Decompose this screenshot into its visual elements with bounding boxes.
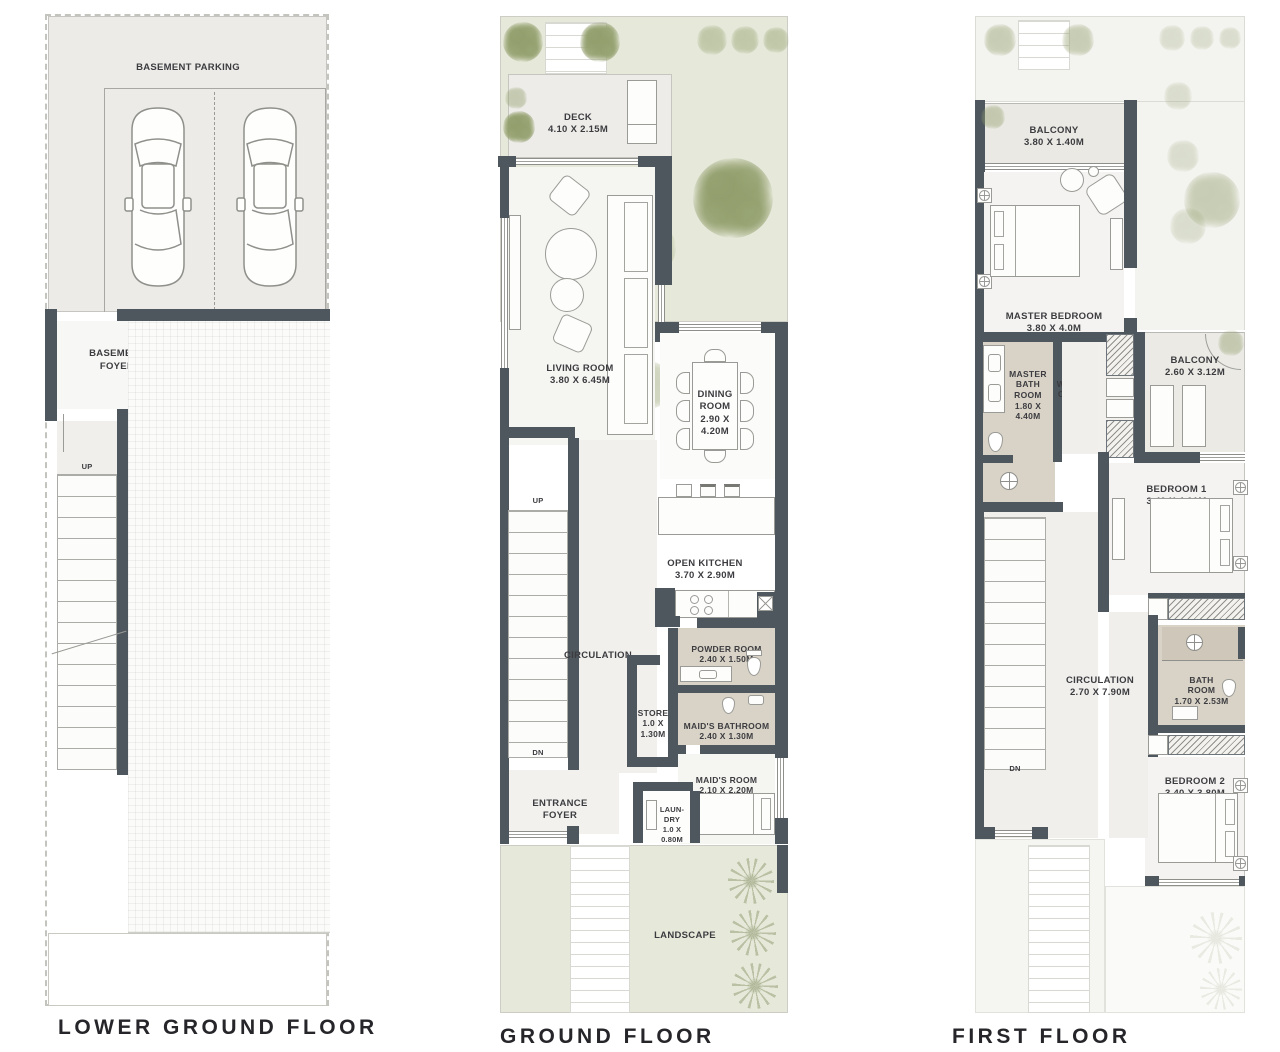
tree-icon <box>693 158 773 238</box>
stove-burner <box>690 606 699 615</box>
lounge-chair <box>627 80 657 144</box>
window <box>777 758 784 818</box>
stairs-lower-ground <box>57 474 117 770</box>
wall-detail <box>1233 778 1248 793</box>
window <box>509 831 567 838</box>
coffee-table <box>550 278 584 312</box>
stairs-up-label: UP <box>57 462 117 472</box>
tree-icon <box>1219 27 1241 49</box>
floor-title-lower-ground: LOWER GROUND FLOOR <box>58 1016 378 1040</box>
wall <box>655 616 680 627</box>
stairs-ground <box>508 510 568 758</box>
tree-icon <box>1159 25 1185 51</box>
stairs-up-label: UP <box>508 496 568 506</box>
room-label-laundry: LAUN- DRY1.0 X 0.80M <box>652 795 692 844</box>
bed <box>990 205 1080 277</box>
car-icon <box>234 102 306 292</box>
room-label-basement-parking: BASEMENT PARKING <box>68 62 308 75</box>
dining-chair <box>676 400 690 422</box>
wall <box>117 421 128 775</box>
closet-shelf <box>1106 399 1134 418</box>
sofa-cushion <box>624 202 648 272</box>
kitchen-island <box>658 497 775 535</box>
bed-line <box>1215 794 1216 862</box>
wall <box>1239 876 1245 886</box>
wall <box>1145 876 1159 886</box>
palm-tree-icon <box>1190 912 1242 964</box>
wall <box>1124 100 1137 172</box>
shower <box>1000 472 1018 490</box>
wall <box>975 502 1063 512</box>
bar-stool <box>700 484 716 497</box>
dining-chair <box>740 428 754 450</box>
dresser <box>1110 218 1123 270</box>
wall <box>568 438 579 773</box>
wall <box>700 745 775 754</box>
sofa <box>607 195 653 435</box>
wall <box>505 427 575 438</box>
tree-icon <box>1164 82 1192 110</box>
counter-divider <box>728 591 729 617</box>
lounge-chair-bar <box>627 124 657 125</box>
room-label-open-kitchen: OPEN KITCHEN3.70 X 2.90M <box>640 545 770 583</box>
tree-icon <box>1190 26 1214 50</box>
wall <box>45 309 57 421</box>
wall <box>567 826 579 844</box>
pillow <box>761 798 771 830</box>
tv-unit <box>1112 498 1125 560</box>
pillow <box>994 244 1004 270</box>
dining-chair <box>704 349 726 362</box>
wall <box>775 618 788 758</box>
side-table <box>1060 168 1084 192</box>
wall <box>975 512 984 827</box>
wall <box>1124 318 1137 332</box>
bar-stool <box>724 484 740 497</box>
wall <box>655 167 672 285</box>
dining-chair <box>676 372 690 394</box>
palm-tree-icon <box>732 963 778 1009</box>
bed-line <box>1209 499 1210 572</box>
wall-detail <box>1233 556 1248 571</box>
stove-burner <box>704 595 713 604</box>
wall <box>777 845 788 893</box>
window <box>516 158 638 165</box>
shower <box>1186 634 1203 651</box>
wall <box>1134 452 1200 463</box>
dining-chair <box>740 400 754 422</box>
wardrobe <box>1168 735 1245 755</box>
closet-shelf <box>1106 378 1134 397</box>
wall-detail <box>977 188 992 203</box>
stove-burner <box>704 606 713 615</box>
room-label-dining-room: DINING ROOM2.90 X 4.20M <box>692 376 738 439</box>
bed <box>1158 793 1238 863</box>
closet-shelf <box>1148 735 1168 755</box>
tree-icon <box>503 22 543 62</box>
stairs-dn-label: DN <box>984 764 1046 774</box>
wall <box>498 156 516 167</box>
bed <box>698 793 775 835</box>
pillow <box>1220 505 1230 532</box>
wall <box>633 791 643 843</box>
bed <box>1150 498 1233 573</box>
sofa-cushion <box>624 278 648 348</box>
tree-icon <box>984 24 1016 56</box>
window <box>1200 454 1245 461</box>
palm-tree-icon <box>1200 968 1242 1010</box>
wall <box>775 322 788 618</box>
room-label-store: STORE1.0 X 1.30M <box>628 697 678 740</box>
floor-title-first: FIRST FLOOR <box>952 1025 1131 1049</box>
window <box>1159 879 1239 886</box>
bar-stool <box>676 484 692 497</box>
sink-basin <box>748 695 764 705</box>
landscape-steps <box>570 845 630 1013</box>
circulation-floor <box>1062 342 1098 454</box>
ghost-steps <box>1028 845 1090 1013</box>
sink-basin <box>699 670 717 679</box>
wall <box>1148 725 1245 733</box>
tree-icon <box>1062 24 1094 56</box>
paved-court <box>128 321 330 933</box>
wall <box>117 309 330 321</box>
stairs-dn-label: DN <box>508 748 568 758</box>
floor-lamp <box>1088 166 1099 177</box>
wall <box>500 167 509 218</box>
pillow <box>994 211 1004 237</box>
wall-detail <box>1233 480 1248 495</box>
closet-unit <box>1106 420 1134 458</box>
wall <box>678 685 775 693</box>
tree-icon <box>763 27 789 53</box>
wall <box>1032 827 1048 839</box>
stall-divider <box>214 92 215 310</box>
tree-icon <box>580 22 620 62</box>
room-label-balcony-front: BALCONY3.80 X 1.40M <box>984 112 1124 150</box>
wardrobe <box>1168 598 1245 620</box>
room-label-balcony-rear: BALCONY2.60 X 3.12M <box>1145 342 1245 380</box>
window <box>995 830 1032 837</box>
tree-icon <box>697 25 727 55</box>
stairs-first <box>984 517 1046 770</box>
pillow <box>1220 539 1230 566</box>
room-label-master-bedroom: MASTER BEDROOM3.80 X 4.0M <box>984 298 1124 336</box>
vanity-sink <box>680 666 732 682</box>
wall <box>775 818 788 844</box>
dining-chair <box>676 428 690 450</box>
wall <box>678 745 686 754</box>
lounge-chair <box>1150 385 1174 447</box>
wall <box>975 342 983 512</box>
wall-detail <box>1233 856 1248 871</box>
car-icon <box>122 102 194 292</box>
duct-shaft <box>758 596 773 611</box>
vanity-sink <box>1172 706 1198 720</box>
stove-burner <box>690 595 699 604</box>
wall <box>975 827 995 839</box>
window <box>501 218 508 368</box>
wall <box>1238 627 1245 659</box>
pillow <box>1225 831 1235 857</box>
door-swing <box>63 414 64 452</box>
closet-unit <box>1106 334 1134 376</box>
bed-line <box>753 794 754 834</box>
tree-icon <box>1167 140 1199 172</box>
wall <box>1124 172 1137 268</box>
window <box>985 163 1124 170</box>
tree-icon <box>731 26 759 54</box>
pillow <box>1225 799 1235 825</box>
bed-line <box>1015 206 1016 276</box>
floor-plan-sheet: BASEMENT PARKING <box>0 0 1280 1052</box>
wall <box>983 455 1013 463</box>
lounge-chair <box>1182 385 1206 447</box>
room-label-maids-bathroom: MAID'S BATHROOM2.40 X 1.30M <box>678 710 775 742</box>
toilet-tank <box>746 650 762 656</box>
dining-chair <box>740 372 754 394</box>
window <box>679 324 761 331</box>
tree-icon <box>1184 172 1240 228</box>
wall <box>1134 332 1145 454</box>
coffee-table <box>545 228 597 280</box>
lower-terrace <box>48 933 327 1006</box>
palm-tree-icon <box>730 910 776 956</box>
wall <box>638 156 672 167</box>
wall <box>500 826 509 844</box>
room-label-entrance-foyer: ENTRANCE FOYER <box>505 785 615 823</box>
circulation-floor <box>1109 612 1148 838</box>
room-label-circulation-first: CIRCULATION2.70 X 7.90M <box>1040 662 1160 700</box>
room-label-living-room: LIVING ROOM3.80 X 6.45M <box>505 350 655 388</box>
wall <box>697 618 775 628</box>
tv-unit <box>509 215 521 330</box>
floor-title-ground: GROUND FLOOR <box>500 1025 715 1049</box>
wall <box>655 322 679 333</box>
wall <box>633 782 693 791</box>
palm-tree-icon <box>728 858 774 904</box>
